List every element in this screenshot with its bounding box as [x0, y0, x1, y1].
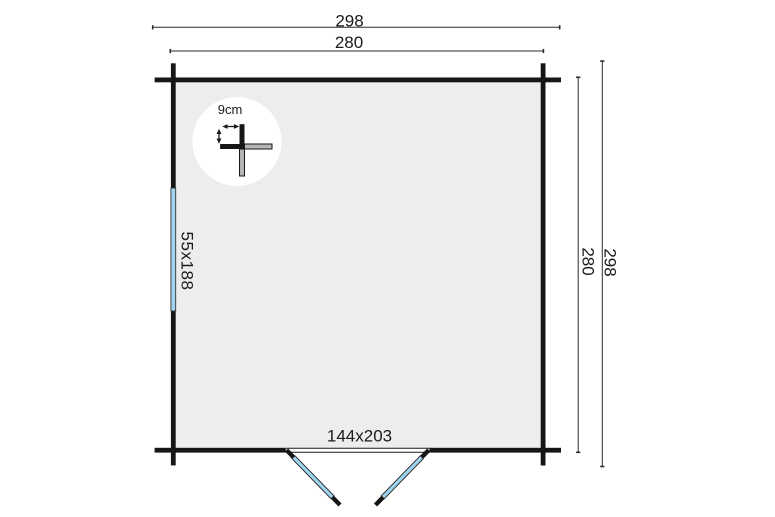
svg-text:298: 298 [335, 12, 363, 31]
svg-text:9cm: 9cm [218, 102, 243, 117]
svg-text:280: 280 [579, 247, 598, 275]
svg-text:144x203: 144x203 [327, 426, 392, 445]
svg-text:55x188: 55x188 [178, 231, 197, 290]
svg-text:298: 298 [601, 248, 620, 276]
svg-text:280: 280 [335, 33, 363, 52]
